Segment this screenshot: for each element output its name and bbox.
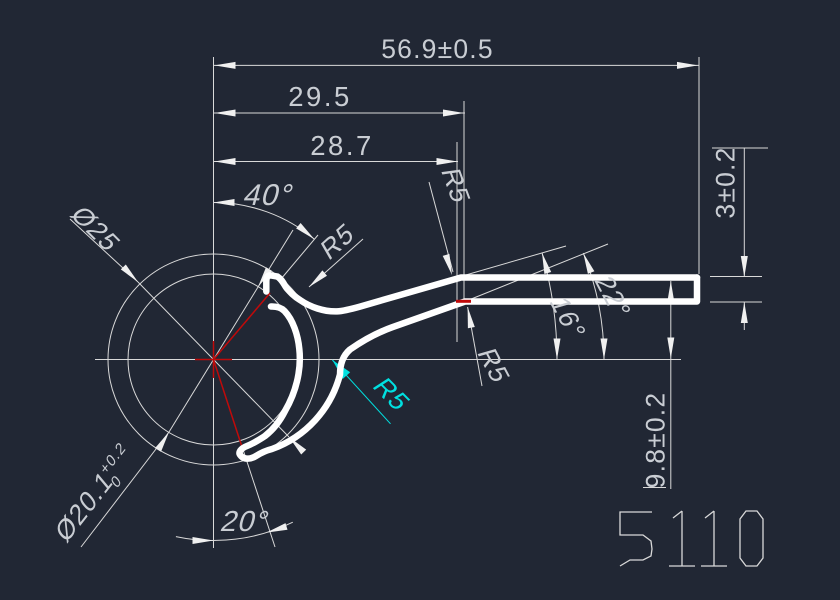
svg-text:R5: R5: [316, 216, 358, 267]
svg-text:R5: R5: [435, 167, 477, 205]
svg-text:28.7: 28.7: [310, 130, 374, 161]
svg-text:R5: R5: [366, 373, 417, 415]
svg-text:29.5: 29.5: [288, 81, 352, 112]
svg-text:Ø25: Ø25: [64, 202, 127, 256]
svg-text:20°: 20°: [217, 505, 273, 537]
svg-text:40°: 40°: [240, 178, 298, 211]
svg-text:3±0.2: 3±0.2: [711, 146, 741, 218]
svg-text:56.9±0.5: 56.9±0.5: [381, 34, 494, 64]
svg-text:R5: R5: [471, 346, 517, 386]
svg-text:9.8±0.2: 9.8±0.2: [641, 392, 671, 489]
